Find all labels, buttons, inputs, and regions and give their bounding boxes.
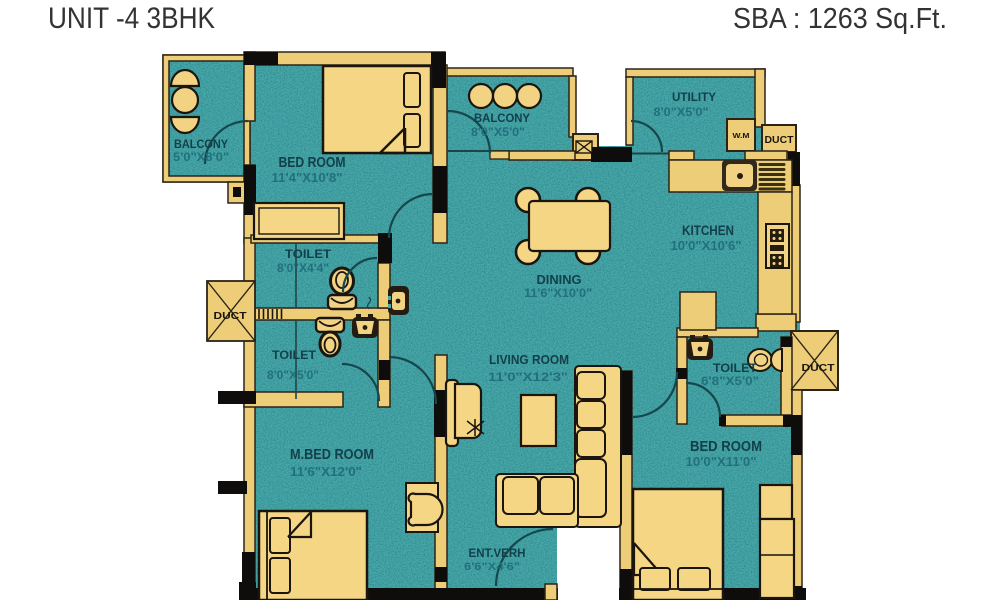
svg-text:SBA : 1263 Sq.Ft.: SBA : 1263 Sq.Ft. (733, 3, 947, 35)
svg-text:LIVING ROOM: LIVING ROOM (489, 353, 569, 367)
svg-text:UTILITY: UTILITY (672, 92, 716, 104)
svg-text:BALCONY: BALCONY (474, 113, 530, 125)
svg-text:8'0"X5'0": 8'0"X5'0" (654, 107, 709, 119)
svg-text:BED ROOM: BED ROOM (279, 155, 346, 171)
svg-text:11'0"X12'3": 11'0"X12'3" (488, 370, 568, 384)
svg-text:UNIT -4 3BHK: UNIT -4 3BHK (48, 2, 215, 35)
svg-text:8'0"X4'4": 8'0"X4'4" (277, 263, 329, 275)
svg-text:W.M: W.M (733, 131, 750, 140)
svg-text:M.BED ROOM: M.BED ROOM (290, 447, 374, 463)
svg-text:6'6"X4'6": 6'6"X4'6" (464, 561, 520, 573)
svg-text:11'6"X10'0": 11'6"X10'0" (524, 286, 592, 300)
svg-text:5'0"X8'0": 5'0"X8'0" (173, 152, 229, 164)
svg-text:KITCHEN: KITCHEN (682, 223, 734, 238)
svg-text:11'4"X10'8": 11'4"X10'8" (272, 170, 343, 185)
svg-text:DINING: DINING (537, 273, 582, 287)
svg-text:TOILET: TOILET (272, 348, 317, 362)
svg-text:DUCT: DUCT (765, 135, 794, 146)
svg-text:DUCT: DUCT (802, 362, 836, 374)
svg-text:BED ROOM: BED ROOM (690, 439, 762, 455)
svg-text:TOILET: TOILET (713, 361, 758, 375)
svg-text:10'0"X10'6": 10'0"X10'6" (671, 238, 742, 253)
svg-text:8'0"X5'0": 8'0"X5'0" (267, 370, 319, 382)
svg-text:10'0"X11'0": 10'0"X11'0" (686, 454, 757, 469)
svg-text:11'6"X12'0": 11'6"X12'0" (290, 464, 362, 479)
svg-text:TOILET: TOILET (285, 247, 332, 261)
svg-text:BALCONY: BALCONY (174, 139, 228, 151)
svg-text:DUCT: DUCT (214, 310, 248, 322)
svg-text:ENT.VERH: ENT.VERH (469, 546, 526, 560)
svg-text:8'0"X5'0": 8'0"X5'0" (471, 127, 525, 139)
svg-text:6'8"X5'0": 6'8"X5'0" (701, 376, 759, 388)
